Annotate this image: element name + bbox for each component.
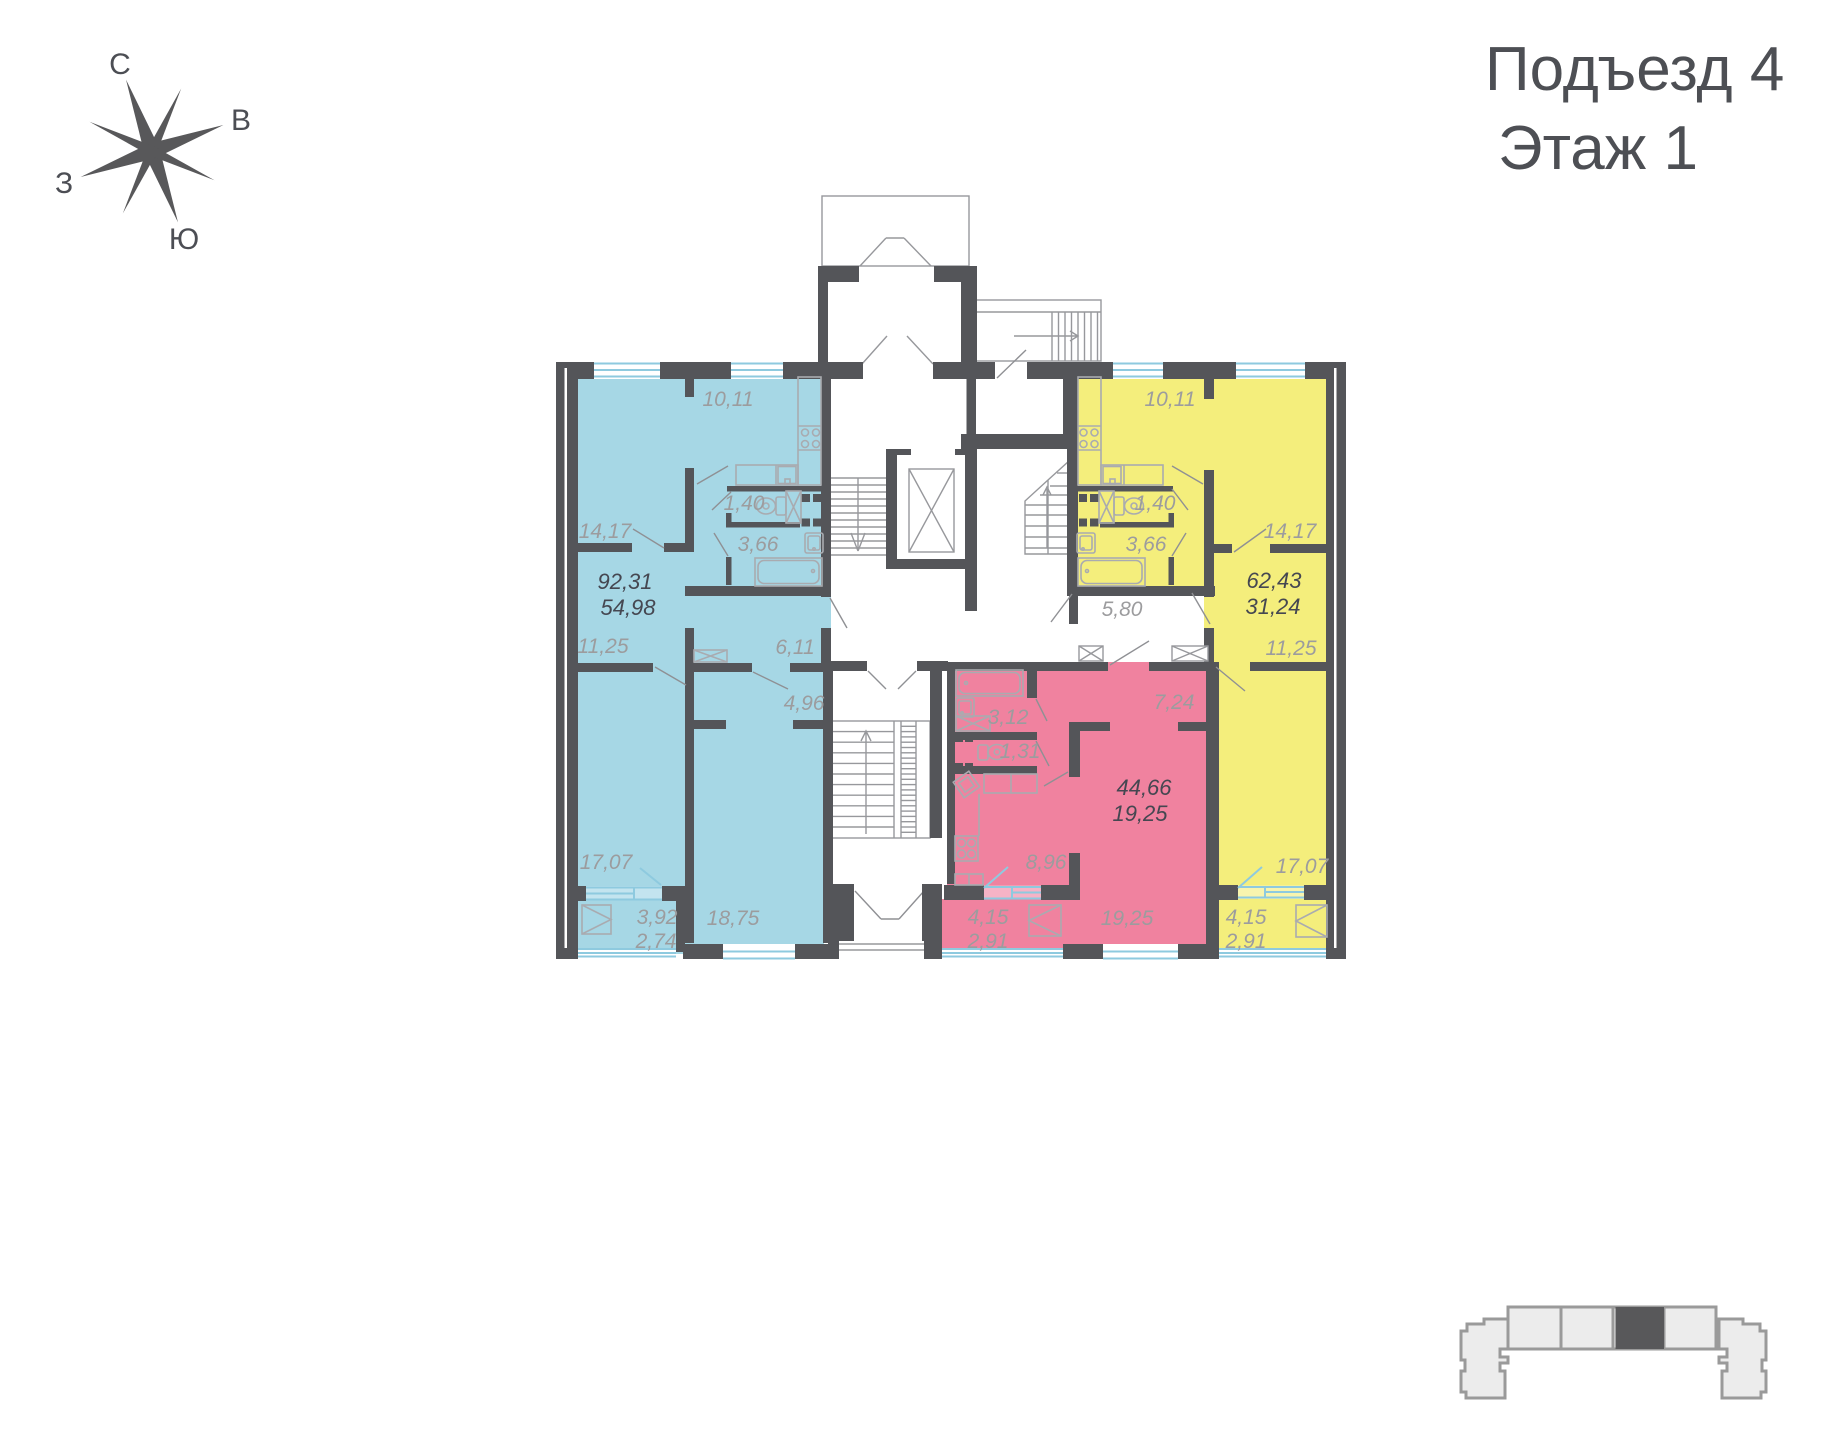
svg-text:6,11: 6,11 — [775, 636, 814, 659]
svg-text:62,43: 62,43 — [1246, 568, 1302, 593]
svg-text:10,11: 10,11 — [703, 388, 754, 411]
svg-text:14,17: 14,17 — [1264, 520, 1318, 543]
svg-text:Подъезд 4: Подъезд 4 — [1485, 35, 1784, 104]
svg-text:З: З — [55, 167, 73, 200]
svg-text:1,40: 1,40 — [1135, 492, 1176, 515]
svg-text:7,24: 7,24 — [1154, 691, 1195, 714]
svg-text:Ю: Ю — [169, 223, 199, 256]
svg-text:19,25: 19,25 — [1101, 907, 1154, 930]
svg-text:3,66: 3,66 — [738, 533, 779, 556]
svg-text:С: С — [109, 48, 131, 81]
svg-text:14,17: 14,17 — [579, 520, 633, 543]
svg-text:2,91: 2,91 — [967, 930, 1009, 953]
svg-text:3,12: 3,12 — [988, 706, 1029, 729]
svg-text:1,40: 1,40 — [724, 492, 765, 515]
svg-text:17,07: 17,07 — [1276, 855, 1330, 878]
svg-text:2,74: 2,74 — [635, 930, 677, 953]
svg-text:3,66: 3,66 — [1126, 533, 1167, 556]
svg-text:2,91: 2,91 — [1225, 930, 1267, 953]
svg-text:17,07: 17,07 — [580, 851, 634, 874]
svg-text:19,25: 19,25 — [1112, 801, 1168, 826]
svg-text:44,66: 44,66 — [1116, 775, 1172, 800]
svg-text:1,31: 1,31 — [1000, 740, 1041, 763]
svg-text:4,96: 4,96 — [784, 692, 825, 715]
svg-text:В: В — [231, 104, 251, 137]
svg-text:5,80: 5,80 — [1102, 598, 1143, 621]
svg-text:18,75: 18,75 — [707, 907, 760, 930]
svg-text:11,25: 11,25 — [1266, 637, 1317, 660]
svg-text:11,25: 11,25 — [578, 635, 629, 658]
svg-text:Этаж 1: Этаж 1 — [1498, 114, 1698, 183]
svg-text:8,96: 8,96 — [1026, 851, 1067, 874]
svg-text:54,98: 54,98 — [600, 595, 656, 620]
svg-text:4,15: 4,15 — [1226, 906, 1267, 929]
svg-text:4,15: 4,15 — [968, 906, 1009, 929]
svg-text:31,24: 31,24 — [1245, 594, 1300, 619]
svg-text:10,11: 10,11 — [1145, 388, 1196, 411]
svg-text:3,92: 3,92 — [637, 906, 678, 929]
svg-text:92,31: 92,31 — [597, 569, 652, 594]
